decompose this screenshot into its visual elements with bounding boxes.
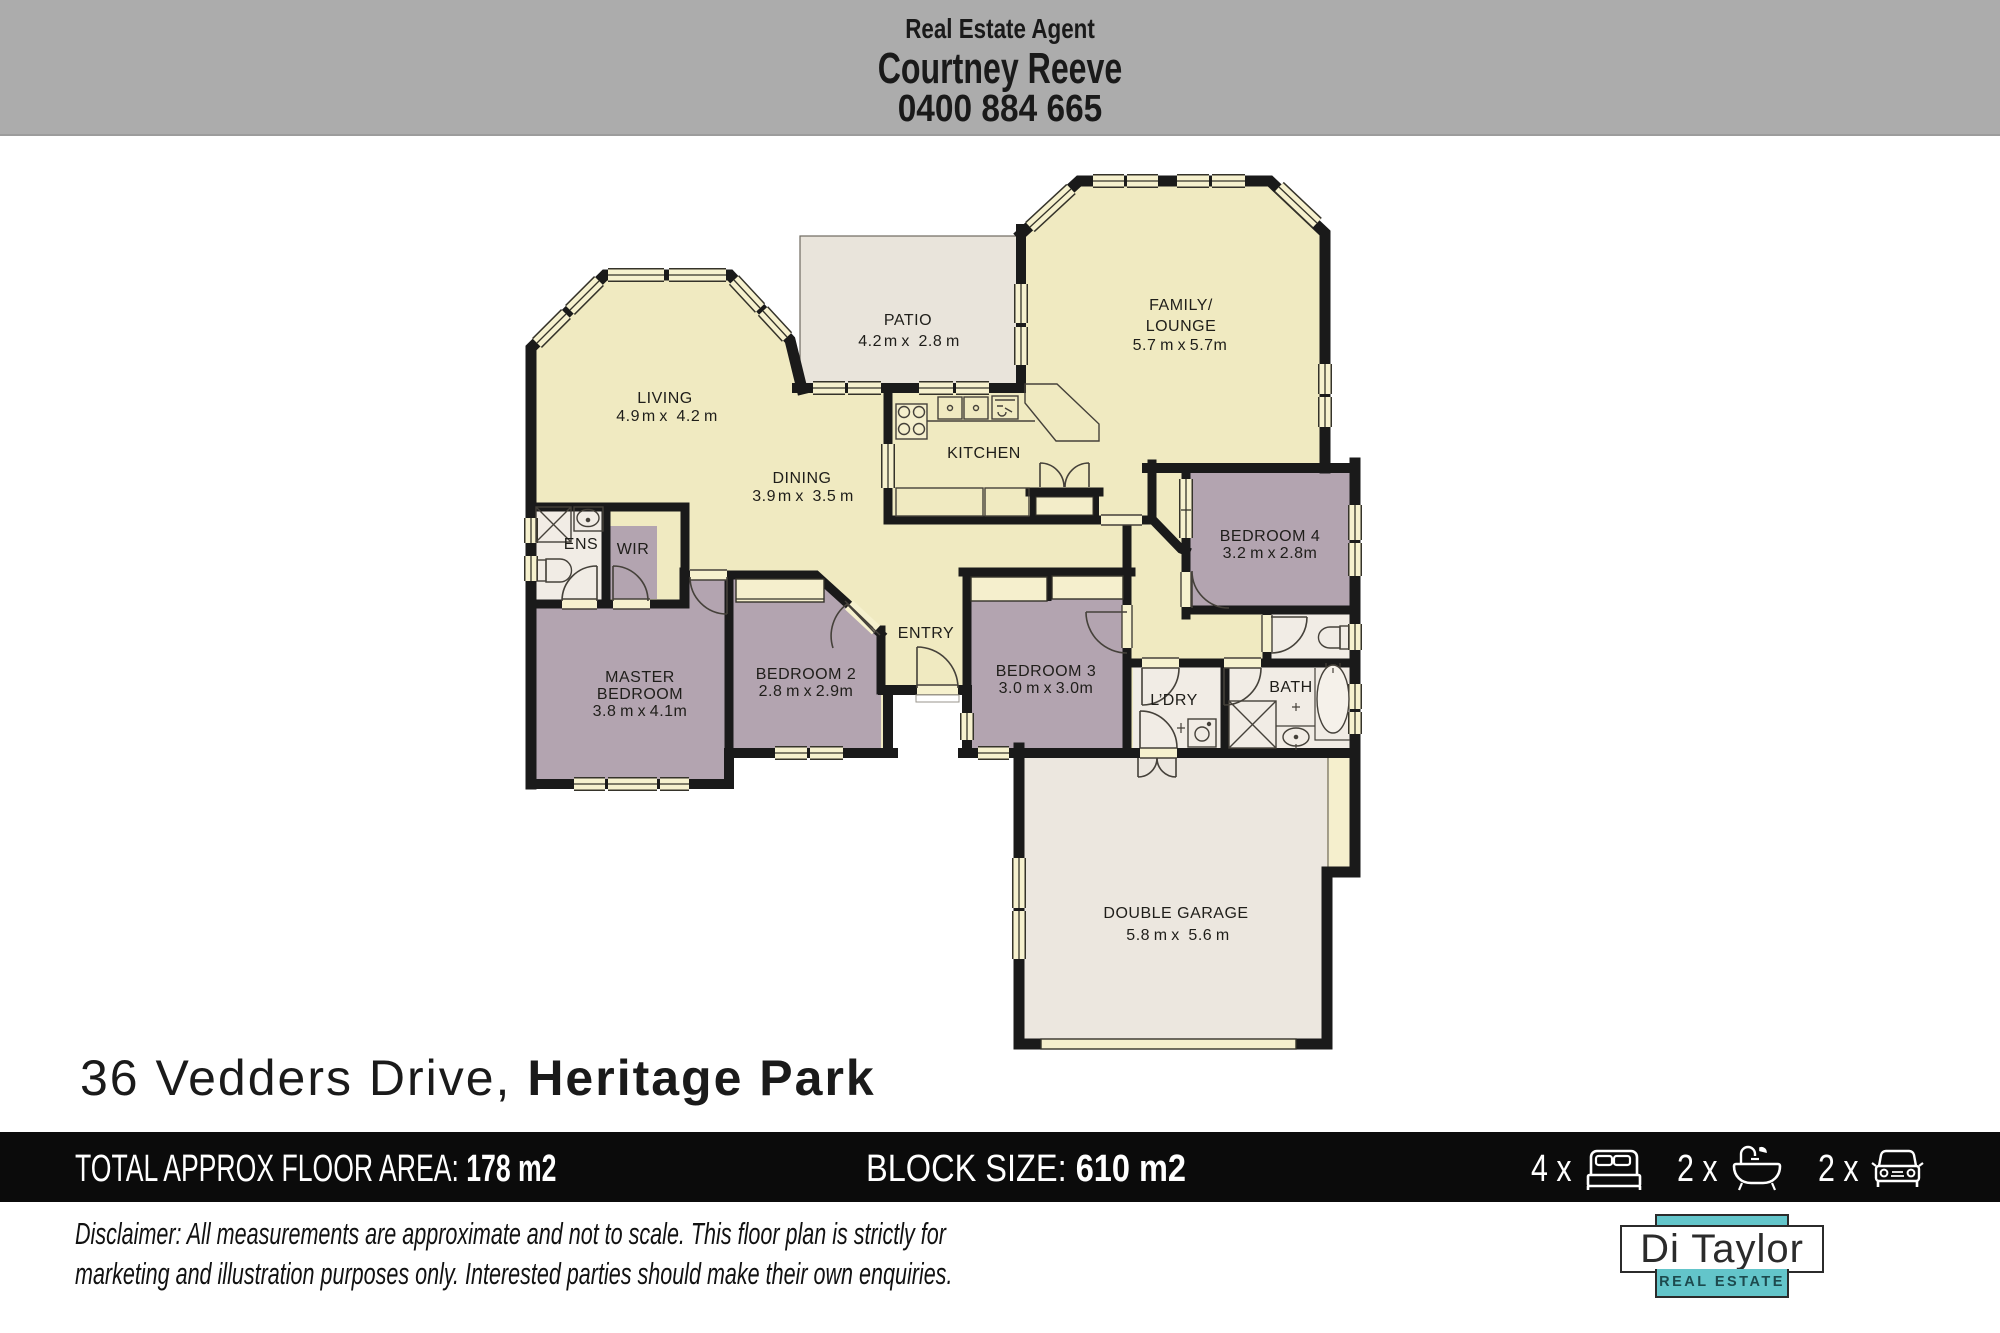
svg-text:ENTRY: ENTRY bbox=[898, 625, 954, 642]
svg-text:2.8 m x 2.9m: 2.8 m x 2.9m bbox=[759, 683, 854, 700]
svg-text:3.2 m x 2.8m: 3.2 m x 2.8m bbox=[1223, 545, 1318, 562]
svg-text:3.0 m x 3.0m: 3.0 m x 3.0m bbox=[999, 680, 1094, 697]
svg-text:MASTER: MASTER bbox=[605, 669, 675, 686]
svg-text:4.2 m x 2.8 m: 4.2 m x 2.8 m bbox=[858, 333, 960, 350]
svg-text:LIVING: LIVING bbox=[637, 390, 692, 407]
svg-text:3.9 m x 3.5 m: 3.9 m x 3.5 m bbox=[752, 488, 854, 505]
svg-text:KITCHEN: KITCHEN bbox=[947, 445, 1021, 462]
svg-text:3.8 m x 4.1m: 3.8 m x 4.1m bbox=[593, 703, 688, 720]
svg-text:5.8 m x 5.6 m: 5.8 m x 5.6 m bbox=[1126, 927, 1229, 944]
svg-text:L’DRY: L’DRY bbox=[1150, 692, 1198, 709]
svg-text:FAMILY/: FAMILY/ bbox=[1149, 297, 1213, 314]
svg-text:BEDROOM 3: BEDROOM 3 bbox=[996, 663, 1097, 680]
svg-text:ENS: ENS bbox=[564, 536, 598, 553]
svg-text:BEDROOM: BEDROOM bbox=[597, 686, 683, 703]
svg-text:PATIO: PATIO bbox=[884, 312, 932, 329]
svg-text:BATH: BATH bbox=[1269, 679, 1312, 696]
svg-text:BEDROOM 4: BEDROOM 4 bbox=[1220, 528, 1321, 545]
svg-text:5.7 m x 5.7m: 5.7 m x 5.7m bbox=[1133, 337, 1228, 354]
svg-text:DINING: DINING bbox=[773, 470, 832, 487]
svg-text:DOUBLE GARAGE: DOUBLE GARAGE bbox=[1103, 905, 1248, 922]
svg-text:WIR: WIR bbox=[617, 541, 650, 558]
svg-text:LOUNGE: LOUNGE bbox=[1146, 318, 1217, 335]
svg-text:BEDROOM 2: BEDROOM 2 bbox=[756, 666, 857, 683]
svg-text:4.9 m x 4.2 m: 4.9 m x 4.2 m bbox=[616, 408, 718, 425]
